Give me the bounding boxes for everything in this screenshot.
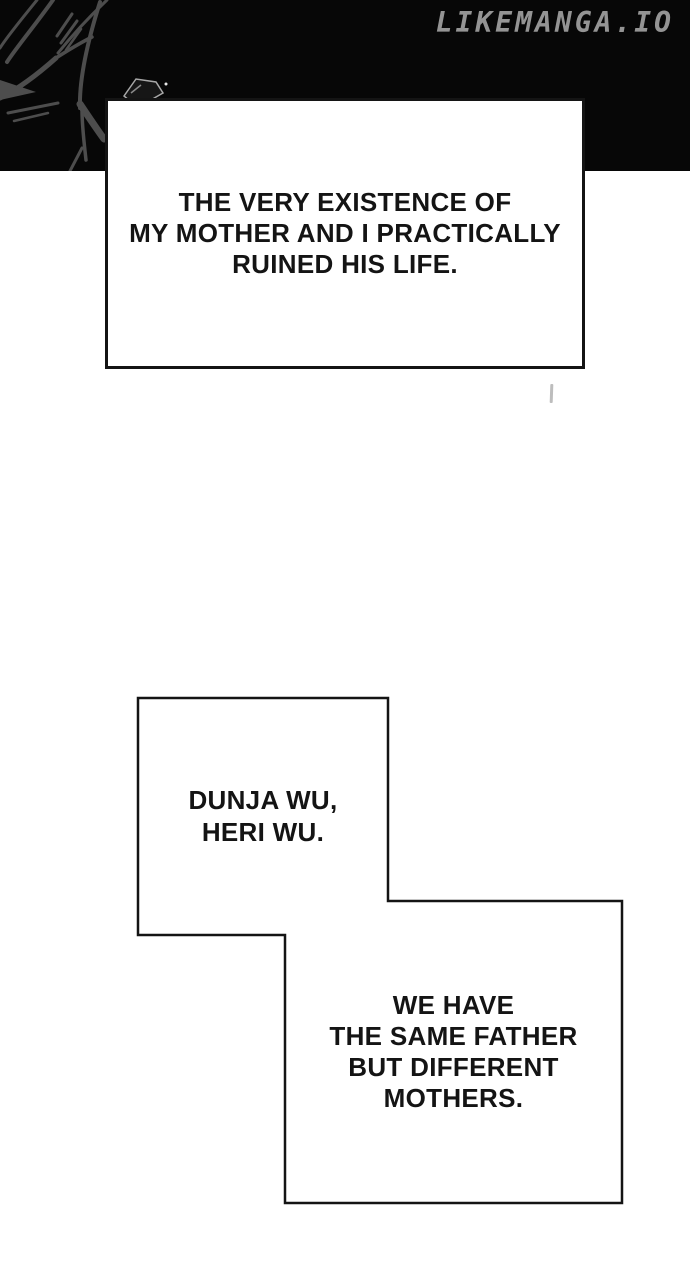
manga-page: LIKEMANGA.IO THE VERY EXISTENCE OF MY MO… [0,0,690,1280]
site-watermark: LIKEMANGA.IO [436,6,674,39]
caption-1-text: THE VERY EXISTENCE OF MY MOTHER AND I PR… [129,187,561,281]
caption-box-1: THE VERY EXISTENCE OF MY MOTHER AND I PR… [105,98,585,369]
caption-2-text: DUNJA WU, HERI WU. [188,785,337,847]
caption-box-2: DUNJA WU, HERI WU. [138,698,388,935]
stray-mark [550,384,554,403]
caption-box-3: WE HAVE THE SAME FATHER BUT DIFFERENT MO… [285,901,622,1203]
line-art-strokes [0,0,107,171]
caption-3-text: WE HAVE THE SAME FATHER BUT DIFFERENT MO… [329,990,577,1115]
